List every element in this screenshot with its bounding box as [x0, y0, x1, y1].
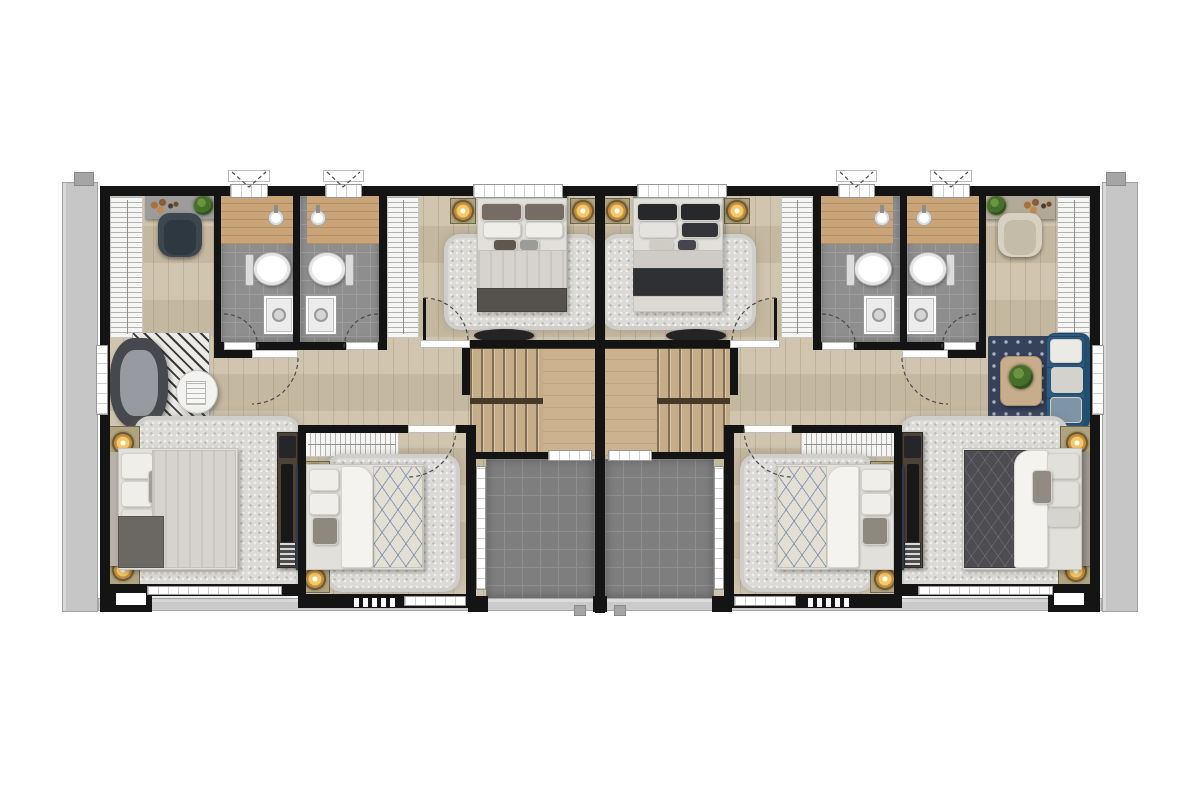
- shower-tray: [864, 296, 894, 334]
- interior-wall: [813, 342, 822, 350]
- door-opening: [822, 342, 854, 350]
- bedside-lamp: [604, 198, 630, 224]
- interior-wall: [894, 425, 902, 596]
- interior-wall: [605, 340, 730, 348]
- wardrobe: [387, 196, 419, 338]
- plant: [194, 196, 213, 215]
- foot-sheet: [633, 296, 723, 312]
- door-opening: [420, 340, 470, 348]
- pillow: [1050, 397, 1082, 423]
- wall-corner-block: [712, 596, 732, 612]
- window: [96, 345, 108, 415]
- terrace-door: [608, 450, 652, 461]
- wall-corner-block: [468, 596, 488, 612]
- window: [1092, 345, 1104, 415]
- vent-hatch: [350, 598, 396, 607]
- pillow: [1050, 339, 1082, 363]
- interior-wall: [462, 340, 470, 395]
- window: [918, 586, 1053, 595]
- lounge-chair-cushion: [120, 350, 158, 416]
- door-opening: [744, 425, 792, 433]
- window: [230, 184, 268, 198]
- interior-wall: [466, 425, 476, 596]
- interior-wall: [293, 196, 300, 350]
- toilet-tank: [846, 254, 855, 286]
- door-opening: [346, 342, 378, 350]
- wardrobe: [110, 196, 143, 338]
- plant: [987, 196, 1006, 215]
- floor-plan: [0, 0, 1200, 800]
- door-opening: [902, 350, 948, 358]
- wall-notch: [116, 593, 146, 605]
- folded-sheet: [341, 466, 373, 568]
- pillow: [1047, 509, 1079, 527]
- door-opening: [408, 425, 456, 433]
- wall-corner-block: [593, 596, 607, 612]
- stair-landing-right: [605, 348, 657, 456]
- window: [473, 184, 563, 198]
- desk-chair: [998, 213, 1042, 257]
- window: [637, 184, 727, 198]
- tv-screen: [907, 464, 919, 544]
- dark-throw: [118, 516, 164, 568]
- stair-rail-right: [657, 398, 730, 404]
- interior-wall: [379, 196, 387, 350]
- media-shelf: [904, 542, 921, 566]
- awning-window-symbol: [836, 170, 877, 182]
- toilet: [308, 252, 346, 286]
- bedside-lamp: [570, 198, 596, 224]
- interior-wall: [214, 196, 221, 350]
- terrace-right: [605, 459, 714, 598]
- accent-pillow: [1032, 470, 1052, 504]
- ledge-cap-right: [1106, 172, 1126, 186]
- downspout-right: [614, 605, 626, 616]
- toilet-tank: [946, 254, 955, 286]
- interior-wall: [298, 425, 306, 596]
- window: [932, 184, 970, 198]
- sink-basin: [268, 210, 284, 226]
- bedside-lamp: [724, 198, 750, 224]
- balcony-ledge-right: [1102, 182, 1138, 612]
- sink-basin: [310, 210, 326, 226]
- window: [838, 184, 875, 198]
- party-wall-center: [595, 186, 605, 613]
- wall-notch: [1054, 593, 1084, 605]
- pillow: [481, 203, 522, 221]
- interior-wall: [948, 350, 986, 358]
- door-leaf: [423, 298, 426, 342]
- media-shelf: [279, 542, 296, 566]
- toilet-tank: [345, 254, 354, 286]
- door-leaf: [774, 298, 777, 342]
- wardrobe: [305, 431, 399, 457]
- interior-wall: [979, 196, 986, 350]
- folded-sheet: [1014, 450, 1048, 568]
- balcony-ledge-left: [62, 182, 98, 612]
- pillow: [639, 222, 677, 238]
- bedside-lamp: [450, 198, 476, 224]
- accent-pillow: [312, 517, 338, 545]
- toilet: [909, 252, 947, 286]
- tv-screen: [281, 464, 293, 544]
- pillow: [861, 493, 891, 515]
- downspout-left: [574, 605, 586, 616]
- toilet: [854, 252, 892, 286]
- terrace-window: [476, 466, 486, 590]
- window: [147, 586, 282, 595]
- stair-rail-left: [470, 398, 543, 404]
- awning-window-symbol: [228, 170, 270, 182]
- interior-wall: [813, 196, 821, 350]
- terrace-left: [486, 459, 595, 598]
- window: [404, 596, 466, 606]
- interior-wall: [854, 342, 944, 350]
- interior-wall: [298, 425, 408, 433]
- folded-sheet: [827, 466, 859, 568]
- pillow: [309, 469, 339, 491]
- media-device: [904, 436, 921, 458]
- desk-chair: [158, 213, 202, 257]
- wardrobe: [801, 431, 895, 457]
- accent-pillow: [862, 517, 888, 545]
- pillow: [525, 222, 563, 238]
- wardrobe: [781, 196, 813, 338]
- door-opening: [224, 342, 256, 350]
- interior-wall: [214, 350, 252, 358]
- pillow: [637, 203, 678, 221]
- sink-basin: [916, 210, 932, 226]
- interior-wall: [792, 425, 902, 433]
- interior-wall: [256, 342, 346, 350]
- media-device: [279, 436, 296, 458]
- pillow: [681, 222, 719, 238]
- interior-wall: [470, 340, 595, 348]
- stair-landing-left: [543, 348, 595, 456]
- book: [186, 381, 206, 405]
- shower-tray: [306, 296, 336, 334]
- pillow: [861, 469, 891, 491]
- window: [325, 184, 362, 198]
- pillow: [680, 203, 721, 221]
- pillow: [483, 222, 521, 238]
- interior-wall: [378, 342, 387, 350]
- pillow: [1051, 367, 1083, 393]
- duvet: [373, 466, 423, 568]
- toilet: [253, 252, 291, 286]
- duvet: [777, 466, 827, 568]
- door-opening: [730, 340, 780, 348]
- vent-hatch: [804, 598, 850, 607]
- duvet: [152, 450, 236, 568]
- awning-window-symbol: [323, 170, 364, 182]
- pillow: [309, 493, 339, 515]
- wardrobe: [1057, 196, 1090, 338]
- door-opening: [252, 350, 298, 358]
- interior-wall: [652, 452, 724, 459]
- pillow: [524, 203, 565, 221]
- ledge-cap-left: [74, 172, 94, 186]
- window: [734, 596, 796, 606]
- foot-throw: [477, 288, 567, 312]
- interior-wall: [730, 340, 738, 395]
- plant: [1009, 365, 1033, 389]
- shower-tray: [906, 296, 936, 334]
- quilted-throw: [633, 268, 723, 296]
- interior-wall: [476, 452, 548, 459]
- shower-tray: [264, 296, 294, 334]
- terrace-door: [548, 450, 592, 461]
- interior-wall: [976, 342, 986, 350]
- terrace-window: [714, 466, 724, 590]
- sink-basin: [874, 210, 890, 226]
- awning-window-symbol: [930, 170, 972, 182]
- interior-wall: [724, 425, 734, 596]
- interior-wall: [214, 342, 224, 350]
- door-opening: [944, 342, 976, 350]
- interior-wall: [900, 196, 907, 350]
